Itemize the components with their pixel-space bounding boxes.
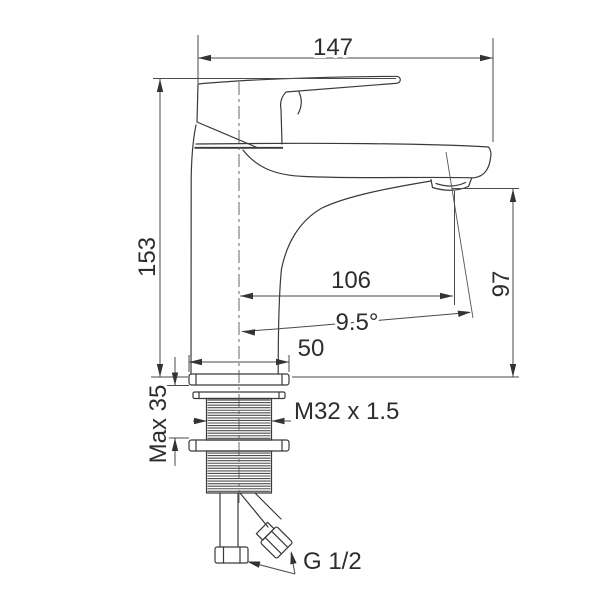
hose-nut-diagonal-body	[260, 526, 293, 559]
hose-nut-diagonal	[254, 520, 293, 559]
dim-text-max35: Max 35	[145, 385, 172, 464]
arrowhead	[272, 418, 285, 424]
dim-text-153: 153	[134, 237, 161, 277]
arrowhead	[480, 55, 493, 61]
arrowhead	[172, 373, 178, 386]
arrowhead	[240, 293, 253, 299]
arrowhead	[510, 189, 516, 202]
dim-text-50: 50	[298, 335, 325, 362]
label-text-g12: G 1/2	[303, 548, 362, 575]
supply-hose-diagonal	[240, 493, 281, 527]
arrowhead	[242, 328, 255, 335]
label-text-m32: M32 x 1.5	[294, 398, 399, 425]
spout-cheek-line	[243, 150, 474, 178]
label-inlet-connection: G 1/2	[246, 548, 361, 575]
arrowhead	[198, 55, 211, 61]
hose-nut-vertical	[215, 547, 248, 563]
dim-text-106: 106	[331, 267, 371, 294]
dim-max35: Max 35	[145, 357, 189, 466]
drawing-svg: 147 153 97 106 9.5°	[0, 0, 600, 600]
water-stream-line	[446, 152, 473, 318]
arrowhead	[276, 359, 289, 365]
dim-text-angle: 9.5°	[336, 309, 379, 336]
dim-50: 50	[189, 335, 324, 372]
dim-text-147: 147	[313, 34, 353, 61]
hose-nut-vertical-facets	[224, 547, 241, 563]
dim-97: 97	[292, 189, 519, 378]
supply-hose-vertical	[220, 493, 238, 547]
handle-left-face	[197, 84, 198, 122]
arrowhead	[288, 550, 297, 564]
arrowhead	[172, 438, 178, 451]
dim-text-97: 97	[488, 271, 515, 298]
body-left-edge	[191, 125, 196, 374]
dim-angle: 9.5°	[242, 309, 472, 336]
arrowhead	[440, 293, 453, 299]
arrowhead	[157, 364, 163, 377]
handle-rear-corner-arc	[298, 92, 301, 114]
arrowhead	[510, 364, 516, 377]
arrowhead	[194, 418, 207, 424]
faucet-technical-drawing: 147 153 97 106 9.5°	[0, 0, 600, 600]
dim-106: 106	[240, 191, 455, 305]
arrowhead	[157, 79, 163, 92]
dim-147: 147	[198, 34, 493, 142]
